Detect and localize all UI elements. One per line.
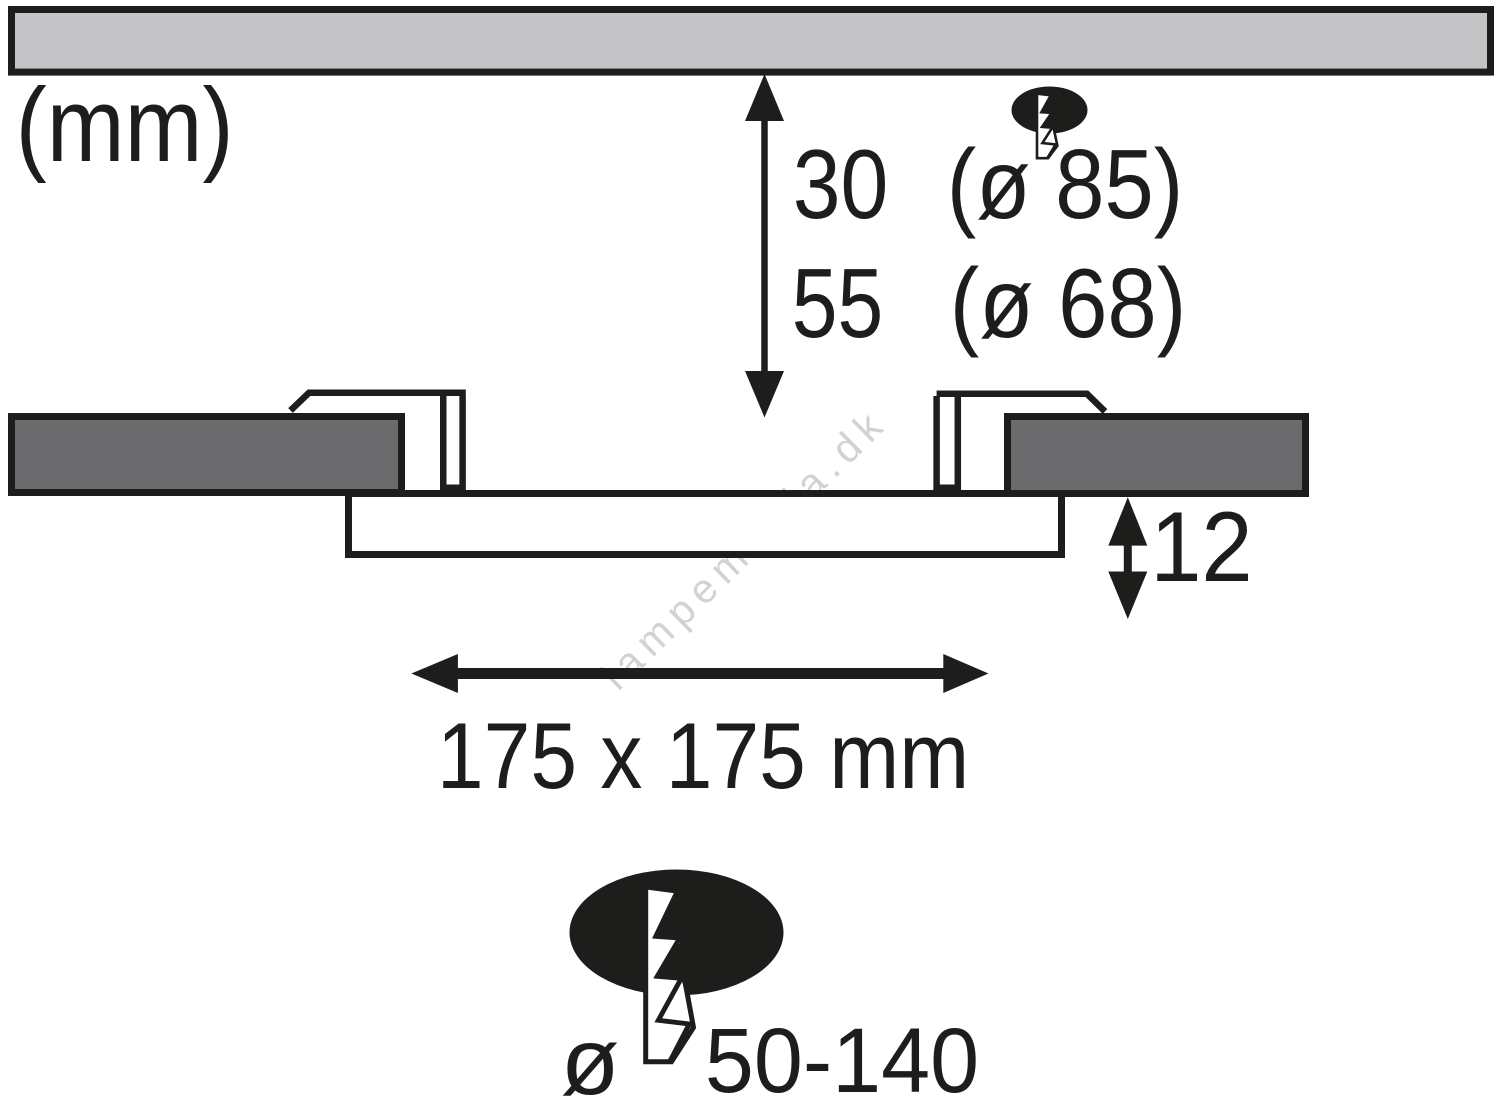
svg-text:(ø 85): (ø 85)	[947, 129, 1184, 239]
svg-text:50-140: 50-140	[705, 1010, 979, 1110]
svg-text:ø: ø	[561, 1009, 620, 1110]
svg-text:(mm): (mm)	[16, 67, 234, 184]
svg-text:175 x 175 mm: 175 x 175 mm	[437, 703, 969, 808]
svg-text:12: 12	[1150, 491, 1253, 602]
svg-text:55: 55	[792, 248, 884, 358]
svg-text:(ø 68): (ø 68)	[950, 248, 1187, 358]
svg-text:30: 30	[793, 129, 889, 239]
